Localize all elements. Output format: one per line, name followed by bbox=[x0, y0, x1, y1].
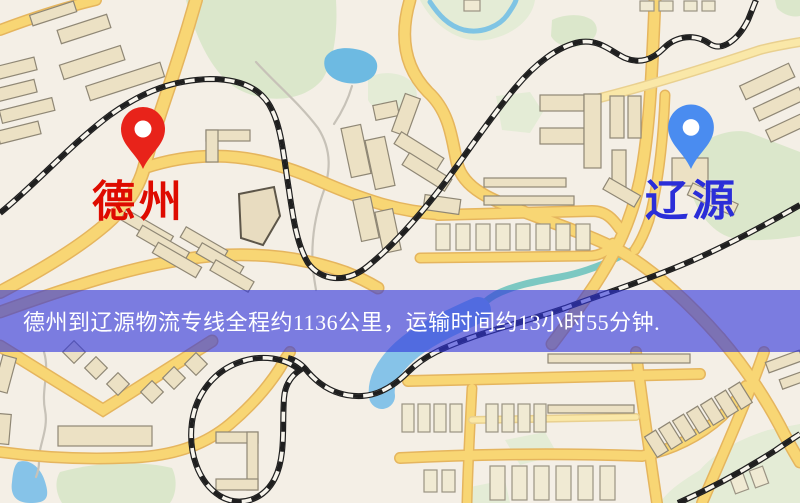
destination-city-label: 辽源 bbox=[645, 181, 739, 224]
building bbox=[540, 95, 584, 111]
building bbox=[536, 224, 550, 250]
building bbox=[206, 130, 218, 162]
building bbox=[424, 470, 437, 492]
building bbox=[442, 470, 455, 492]
building bbox=[496, 224, 510, 250]
building bbox=[640, 1, 654, 11]
building bbox=[434, 404, 446, 432]
building bbox=[540, 128, 584, 144]
map-viewport[interactable]: 德州 辽源 德州到辽源物流专线全程约1136公里，运输时间约13小时55分钟. bbox=[0, 0, 800, 503]
building bbox=[578, 466, 593, 500]
building bbox=[659, 1, 673, 11]
building bbox=[486, 404, 498, 432]
building bbox=[456, 224, 470, 250]
building bbox=[0, 414, 11, 445]
red-pin-hole bbox=[135, 121, 152, 138]
building bbox=[464, 0, 480, 11]
building bbox=[436, 224, 450, 250]
building bbox=[476, 224, 490, 250]
building bbox=[418, 404, 430, 432]
building bbox=[548, 405, 634, 413]
route-info-text: 德州到辽源物流专线全程约1136公里，运输时间约13小时55分钟. bbox=[0, 305, 660, 337]
building bbox=[484, 178, 566, 187]
building bbox=[556, 224, 570, 250]
building bbox=[584, 94, 601, 168]
building bbox=[512, 466, 527, 500]
building bbox=[502, 404, 514, 432]
blue-pin-hole bbox=[683, 119, 700, 136]
building bbox=[534, 404, 546, 432]
origin-city-label: 德州 bbox=[92, 182, 186, 225]
route-info-banner: 德州到辽源物流专线全程约1136公里，运输时间约13小时55分钟. bbox=[0, 290, 800, 352]
building bbox=[702, 1, 715, 11]
building bbox=[548, 354, 690, 363]
building bbox=[684, 1, 697, 11]
building bbox=[58, 426, 152, 446]
building bbox=[450, 404, 462, 432]
building bbox=[534, 466, 549, 500]
building bbox=[628, 96, 641, 138]
building bbox=[516, 224, 530, 250]
building bbox=[402, 404, 414, 432]
building bbox=[576, 224, 590, 250]
building bbox=[518, 404, 530, 432]
building bbox=[484, 196, 574, 205]
building bbox=[556, 466, 571, 500]
road bbox=[467, 388, 472, 503]
building bbox=[216, 479, 258, 490]
building bbox=[490, 466, 505, 500]
building bbox=[600, 466, 615, 500]
map-canvas[interactable] bbox=[0, 0, 800, 503]
building bbox=[610, 96, 624, 138]
park-area bbox=[56, 463, 175, 503]
